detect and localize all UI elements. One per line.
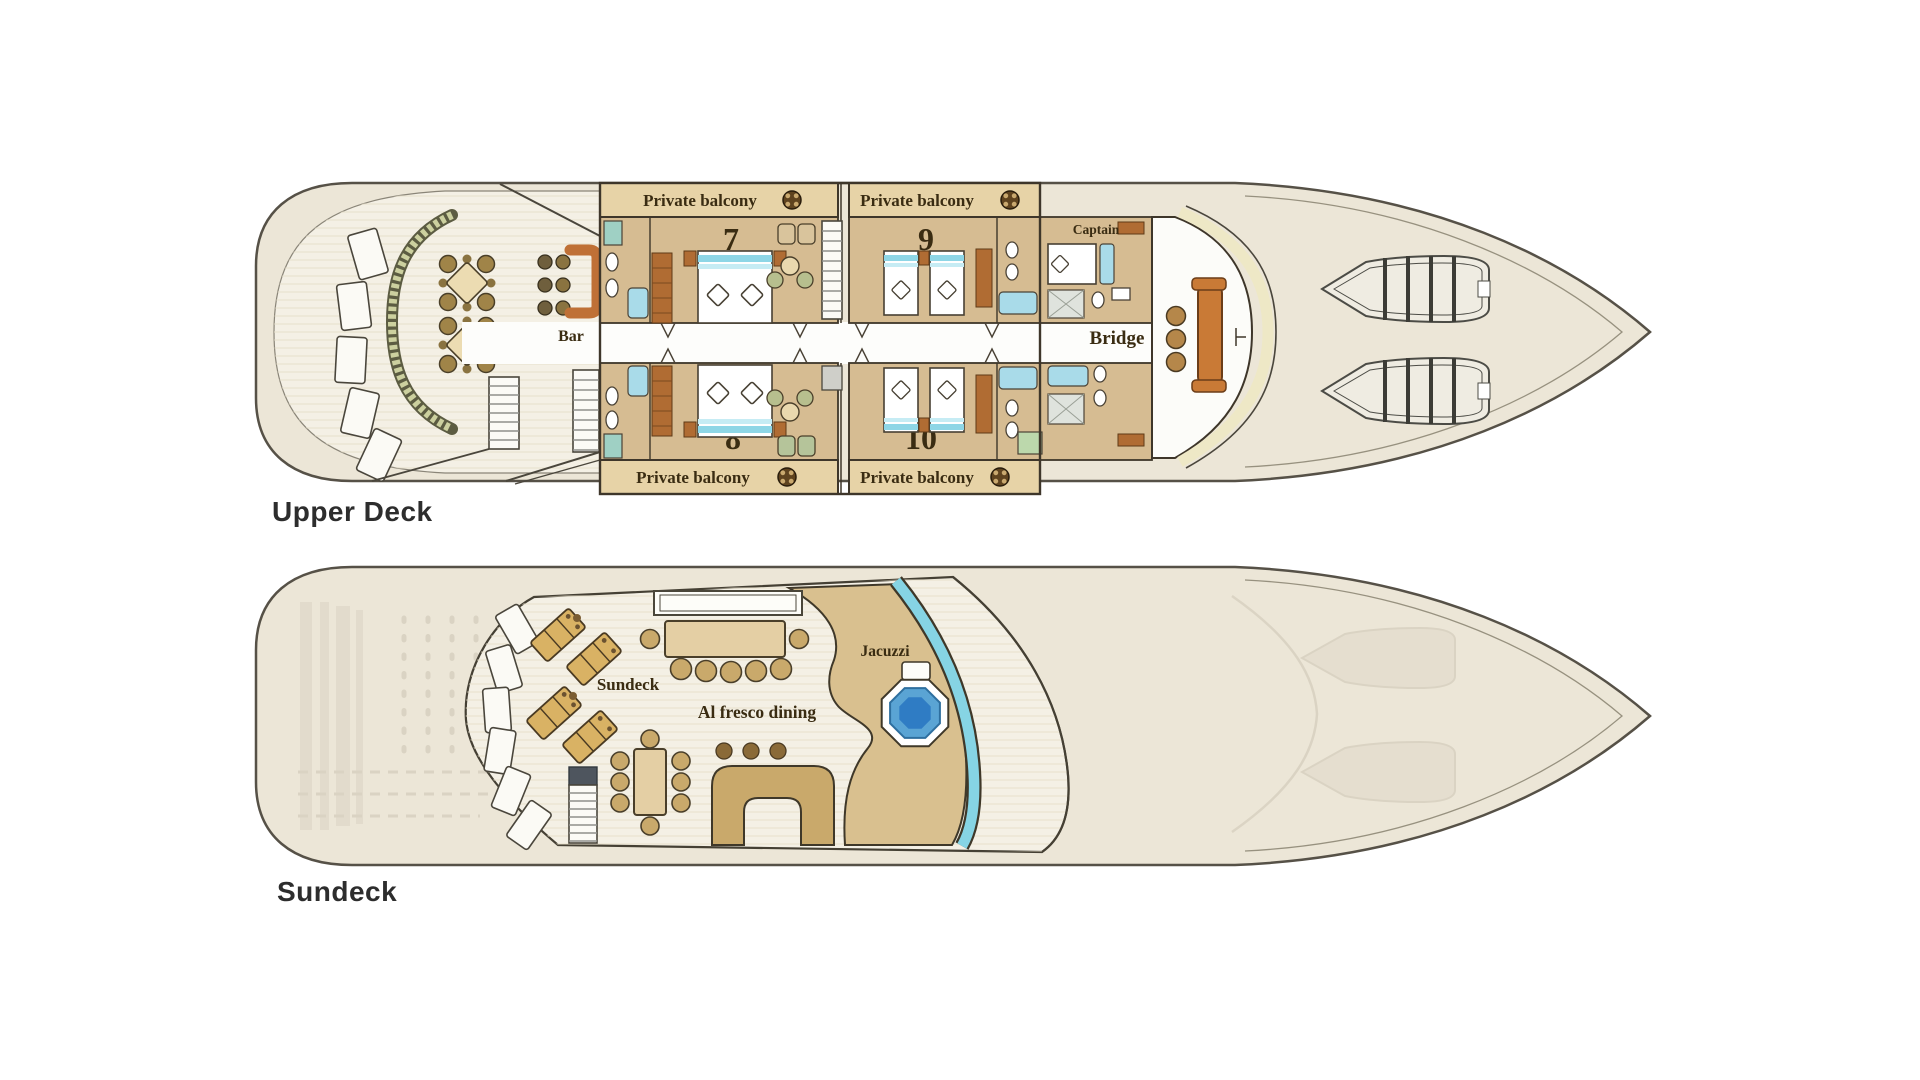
settee [628,366,648,396]
aft-table-1 [439,255,496,312]
aft-staircase-right [573,370,599,452]
balcony-label-rear-left: Private balcony [636,468,750,487]
shower [604,221,622,245]
balcony-label-front-right: Private balcony [860,191,974,210]
toilet [606,411,618,429]
sink [1006,242,1018,258]
deck-plan-page: Bar Private balcony Privat [0,0,1920,1080]
fan-icon [991,468,1009,486]
twin-bed [884,368,918,432]
helm-console [1198,285,1222,385]
upper-deck-caption: Upper Deck [272,496,433,527]
toilet [1006,264,1018,280]
sundeck-caption: Sundeck [277,876,397,907]
toilet [606,279,618,297]
sink [606,253,618,271]
deck-plan-figure: Bar Private balcony Privat [0,0,1920,1080]
twin-bed [930,368,964,432]
bathtub [999,292,1037,314]
toilet [1006,422,1018,438]
sink [606,387,618,405]
jacuzzi-label: Jacuzzi [860,643,910,660]
balcony-label-front-left: Private balcony [643,191,757,210]
settee [628,288,648,318]
fan-icon [1001,191,1019,209]
bar-label: Bar [558,328,584,345]
skylight [654,591,802,615]
bathtub [999,367,1037,389]
al-fresco-label: Al fresco dining [698,702,817,722]
shower [604,434,622,458]
upper-deck-plan: Bar Private balcony Privat [256,183,1650,527]
bridge-chairs [1167,307,1186,372]
balcony-label-rear-right: Private balcony [860,468,974,487]
captain-label: Captain [1073,222,1120,237]
sink [1006,400,1018,416]
fan-icon [783,191,801,209]
sundeck-staircase [569,767,597,843]
sundeck-plan: Sundeck Al fresco dining Jacuzzi Sundeck [256,567,1650,907]
fan-icon [778,468,796,486]
sundeck-area-label: Sundeck [597,675,660,694]
bridge-label: Bridge [1090,328,1145,349]
